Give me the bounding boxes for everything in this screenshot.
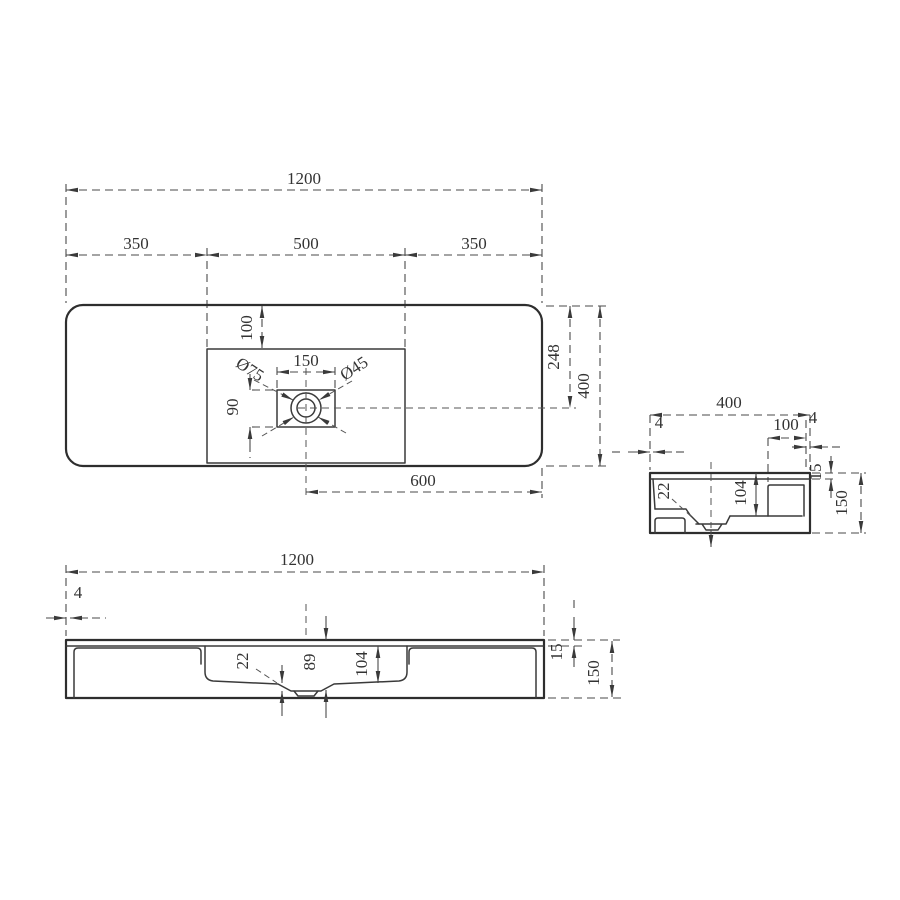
drain-recess-side (696, 516, 730, 530)
left-panel-front (74, 648, 201, 698)
dim-front-bowl-depth: 104 (352, 651, 371, 677)
dim-side-shelf-depth: 22 (654, 483, 673, 500)
basin-outline-side (650, 473, 810, 533)
bowl-slope-side (655, 509, 699, 524)
dim-side-back-deck: 100 (773, 415, 799, 434)
technical-drawing-canvas: 1200 350 500 350 100 150 90 (0, 0, 900, 900)
dim-plan-segment-center: 500 (293, 234, 319, 253)
dim-front-overall-height: 150 (584, 660, 603, 686)
dim-plan-drain-to-right-edge: 600 (410, 471, 436, 490)
dim-front-rim-height: 15 (547, 644, 566, 661)
dim-plan-overall-width: 1200 (287, 169, 321, 188)
dim-plan-center-from-back: 248 (544, 344, 563, 370)
dim-side-rim-height: 15 (806, 464, 825, 481)
dim-plan-overall-depth: 400 (574, 373, 593, 399)
front-section-view: 1200 4 22 89 104 15 (46, 550, 622, 719)
side-section-view: 400 4 100 4 22 104 (612, 393, 866, 547)
leader-drain (318, 417, 346, 433)
dim-side-front-wall: 4 (655, 413, 664, 432)
dim-plan-segment-left: 350 (123, 234, 149, 253)
dim-front-drain-depth: 89 (300, 654, 319, 671)
dim-front-overall-width: 1200 (280, 550, 314, 569)
dim-front-side-wall: 4 (74, 583, 83, 602)
dim-plan-overflow-diameter: Ø75 (233, 353, 268, 385)
dim-side-overall-depth: 400 (716, 393, 742, 412)
dim-front-shelf-depth: 22 (233, 653, 252, 670)
right-panel-front (409, 648, 536, 698)
dim-side-bowl-depth: 104 (731, 480, 750, 506)
dim-side-overall-height: 150 (832, 490, 851, 516)
dim-side-back-wall: 4 (809, 408, 818, 427)
basin-outline-plan (66, 305, 542, 466)
dim-plan-basin-back-inset: 100 (237, 315, 256, 341)
dim-plan-drain-diameter: Ø45 (337, 352, 372, 384)
washbasin-drawing: 1200 350 500 350 100 150 90 (0, 0, 900, 900)
dim-plan-drain-box-height: 90 (223, 399, 242, 416)
deck-step-side (768, 485, 804, 516)
hidden-shelf-line (256, 669, 277, 683)
dim-plan-segment-right: 350 (461, 234, 487, 253)
foot-side (655, 518, 685, 533)
plan-view: 1200 350 500 350 100 150 90 (66, 169, 608, 498)
dim-plan-drain-box-width: 150 (293, 351, 319, 370)
